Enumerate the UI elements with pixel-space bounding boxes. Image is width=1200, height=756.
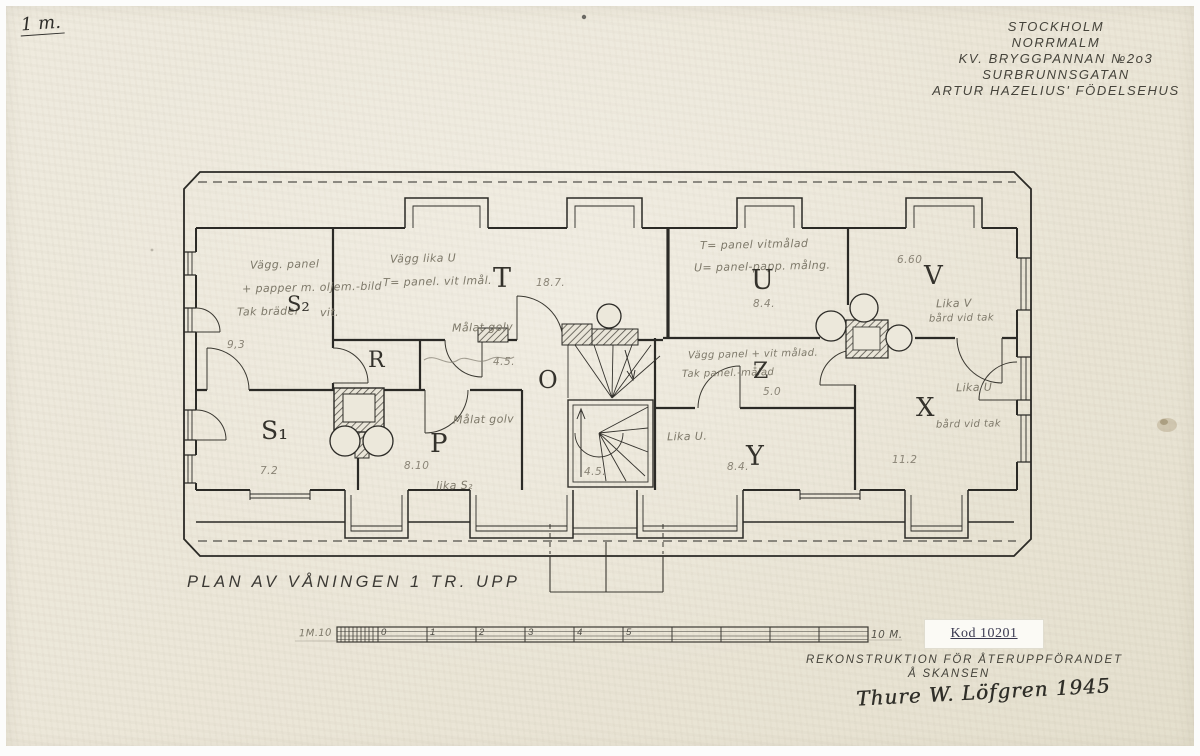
kod-label-box: Kod 10201 xyxy=(924,619,1044,649)
room-r-label: R xyxy=(368,348,385,373)
outer-outline xyxy=(184,172,1031,556)
kod-label: Kod 10201 xyxy=(950,626,1017,642)
hall-o-area: 4.5. xyxy=(584,466,606,478)
room-t-note: Vägg lika U xyxy=(390,251,456,265)
scale-tick-label: 0 xyxy=(381,627,386,638)
top-wall-notches xyxy=(405,198,982,228)
room-s1-label: S₁ xyxy=(261,416,288,445)
stove-stair xyxy=(562,324,592,345)
room-x-note: Lika U xyxy=(956,381,993,395)
room-p-area: 8.10 xyxy=(404,460,429,472)
room-p-note: lika S₂ xyxy=(436,479,473,493)
room-s2-area: 9,3 xyxy=(227,339,245,351)
scale-tick-label: 2 xyxy=(479,627,484,638)
stoves xyxy=(330,294,912,458)
room-u-area: 8.4. xyxy=(753,298,775,310)
title-block-line: NORRMALM xyxy=(930,35,1182,51)
room-t-label: T xyxy=(493,263,511,294)
room-x-note: bård vid tak xyxy=(936,418,1001,430)
room-p-label: P xyxy=(430,429,448,459)
title-block-line: STOCKHOLM xyxy=(930,19,1182,35)
drawing-sheet: 1 m. STOCKHOLM NORRMALM KV. BRYGGPANNAN … xyxy=(0,0,1200,756)
room-y-note: Lika U. xyxy=(667,430,707,444)
room-x-area: 11.2 xyxy=(892,454,917,466)
room-v-area: 6.60 xyxy=(897,254,922,266)
title-block-line: KV. BRYGGPANNAN №2o3 xyxy=(930,51,1182,67)
room-p-note: Målat golv xyxy=(453,412,514,426)
room-t-note: T= panel. vit lmål. xyxy=(383,274,492,289)
room-z-area: 5.0 xyxy=(763,386,781,398)
scale-prefix: 1M.10 xyxy=(299,628,332,640)
room-u-note: T= panel vitmålad xyxy=(700,237,809,252)
reconstruction-line: REKONSTRUKTION FÖR ÅTERUPPFÖRANDET xyxy=(806,654,1092,668)
room-s2-note: vit. xyxy=(320,306,339,319)
room-x-label: X xyxy=(916,393,935,423)
scale-tick-label: 3 xyxy=(528,627,533,638)
hall-o-area: 4.5. xyxy=(493,356,515,368)
room-s2-note: Vägg. panel xyxy=(250,257,320,271)
room-t-area: 18.7. xyxy=(536,277,565,289)
room-z-label: Z xyxy=(753,359,768,384)
room-s1-area: 7.2 xyxy=(260,465,278,477)
room-u-label: U xyxy=(751,265,774,296)
hall-o-label: O xyxy=(538,366,558,394)
room-t-note: Målat golv xyxy=(452,320,513,334)
staircase xyxy=(568,345,660,487)
room-v-note: Lika V xyxy=(936,297,972,311)
scale-end-label: 10 M. xyxy=(871,629,903,641)
plan-title: PLAN AV VÅNINGEN 1 TR. UPP xyxy=(187,573,520,592)
scale-tick-label: 1 xyxy=(430,627,435,638)
scale-tick-label: 4 xyxy=(577,627,582,638)
title-block: STOCKHOLM NORRMALM KV. BRYGGPANNAN №2o3 … xyxy=(930,19,1182,99)
room-y-area: 8.4. xyxy=(727,461,749,473)
room-v-note: bård vid tak xyxy=(929,312,994,324)
scale-tick-label: 5 xyxy=(626,627,631,638)
scale-note: 1 m. xyxy=(19,11,64,36)
title-block-line: SURBRUNNSGATAN xyxy=(930,67,1182,83)
title-block-line: ARTUR HAZELIUS' FÖDELSEHUS xyxy=(930,83,1182,99)
room-v-label: V xyxy=(924,261,943,291)
room-s2-label: S₂ xyxy=(287,292,310,316)
